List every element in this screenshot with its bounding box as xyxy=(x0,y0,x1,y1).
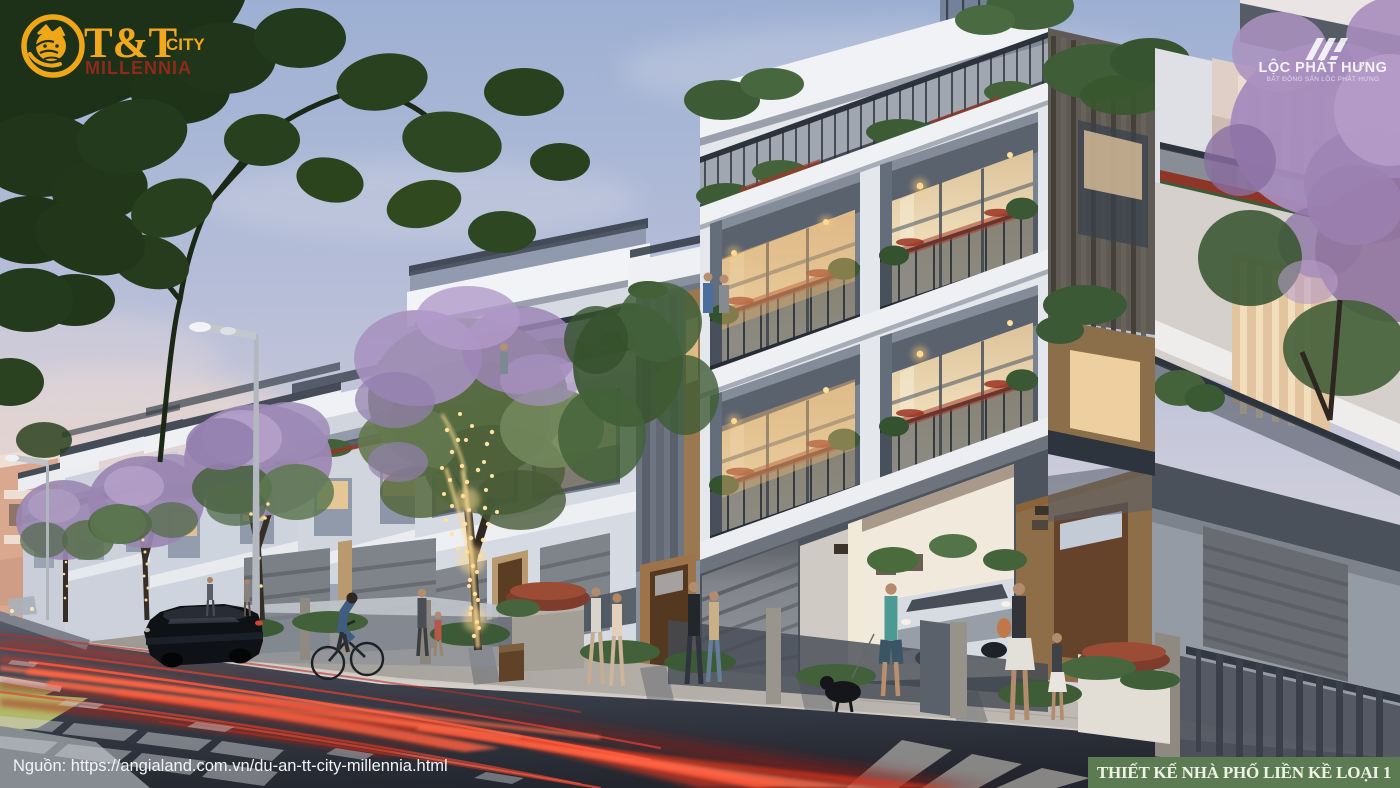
svg-text:LỘC PHÁT HƯNG: LỘC PHÁT HƯNG xyxy=(1259,58,1388,74)
svg-text:CITY: CITY xyxy=(166,35,205,54)
svg-text:MILLENNIA: MILLENNIA xyxy=(85,58,192,78)
